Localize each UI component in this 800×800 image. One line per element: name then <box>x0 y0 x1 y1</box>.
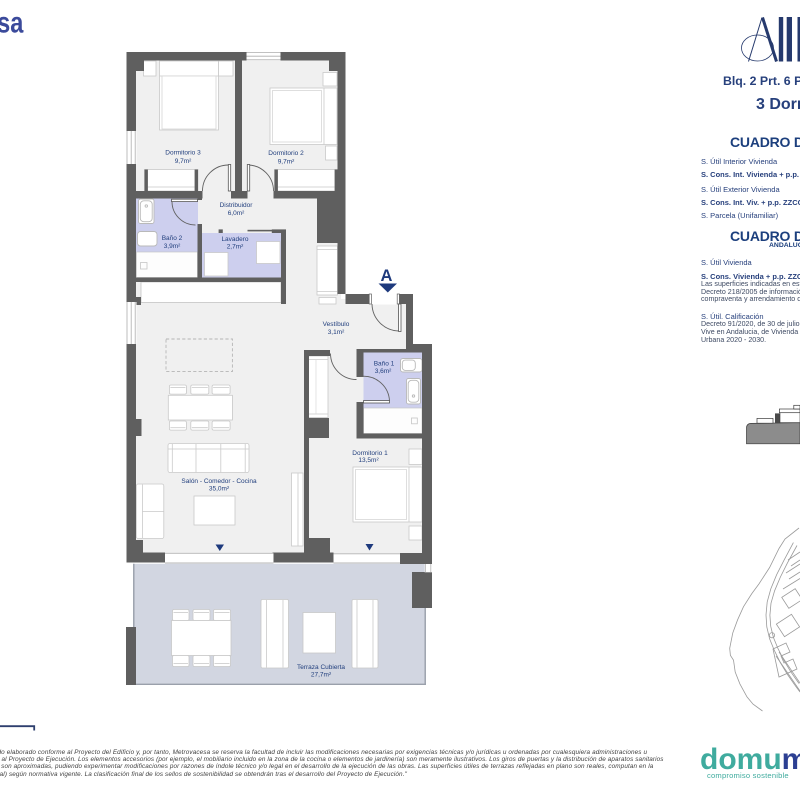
svg-text:Dormitorio 3: Dormitorio 3 <box>165 150 201 157</box>
svg-text:Baño 1: Baño 1 <box>374 361 395 368</box>
svg-text:2,7m²: 2,7m² <box>227 244 244 251</box>
svg-text:13,5m²: 13,5m² <box>358 457 379 464</box>
svg-text:3,6m²: 3,6m² <box>375 368 392 375</box>
svg-text:Salón - Comedor - Cocina: Salón - Comedor - Cocina <box>181 478 257 485</box>
svg-text:27,7m²: 27,7m² <box>311 672 332 679</box>
svg-text:9,7m²: 9,7m² <box>175 158 192 165</box>
svg-text:A: A <box>381 267 393 285</box>
svg-text:Dormitorio 2: Dormitorio 2 <box>268 150 304 157</box>
svg-text:6,0m²: 6,0m² <box>228 210 245 217</box>
svg-text:Baño 2: Baño 2 <box>162 235 183 242</box>
svg-text:Dormitorio 1: Dormitorio 1 <box>352 450 388 457</box>
svg-text:Distribuidor: Distribuidor <box>220 202 254 209</box>
svg-text:9,7m²: 9,7m² <box>278 159 295 166</box>
svg-text:Lavadero: Lavadero <box>221 236 248 243</box>
svg-text:3,1m²: 3,1m² <box>328 329 345 336</box>
svg-text:Terraza Cubierta: Terraza Cubierta <box>297 664 345 671</box>
svg-text:35,0m²: 35,0m² <box>209 486 230 493</box>
svg-text:3,9m²: 3,9m² <box>164 243 181 250</box>
svg-text:Vestíbulo: Vestíbulo <box>323 321 350 328</box>
